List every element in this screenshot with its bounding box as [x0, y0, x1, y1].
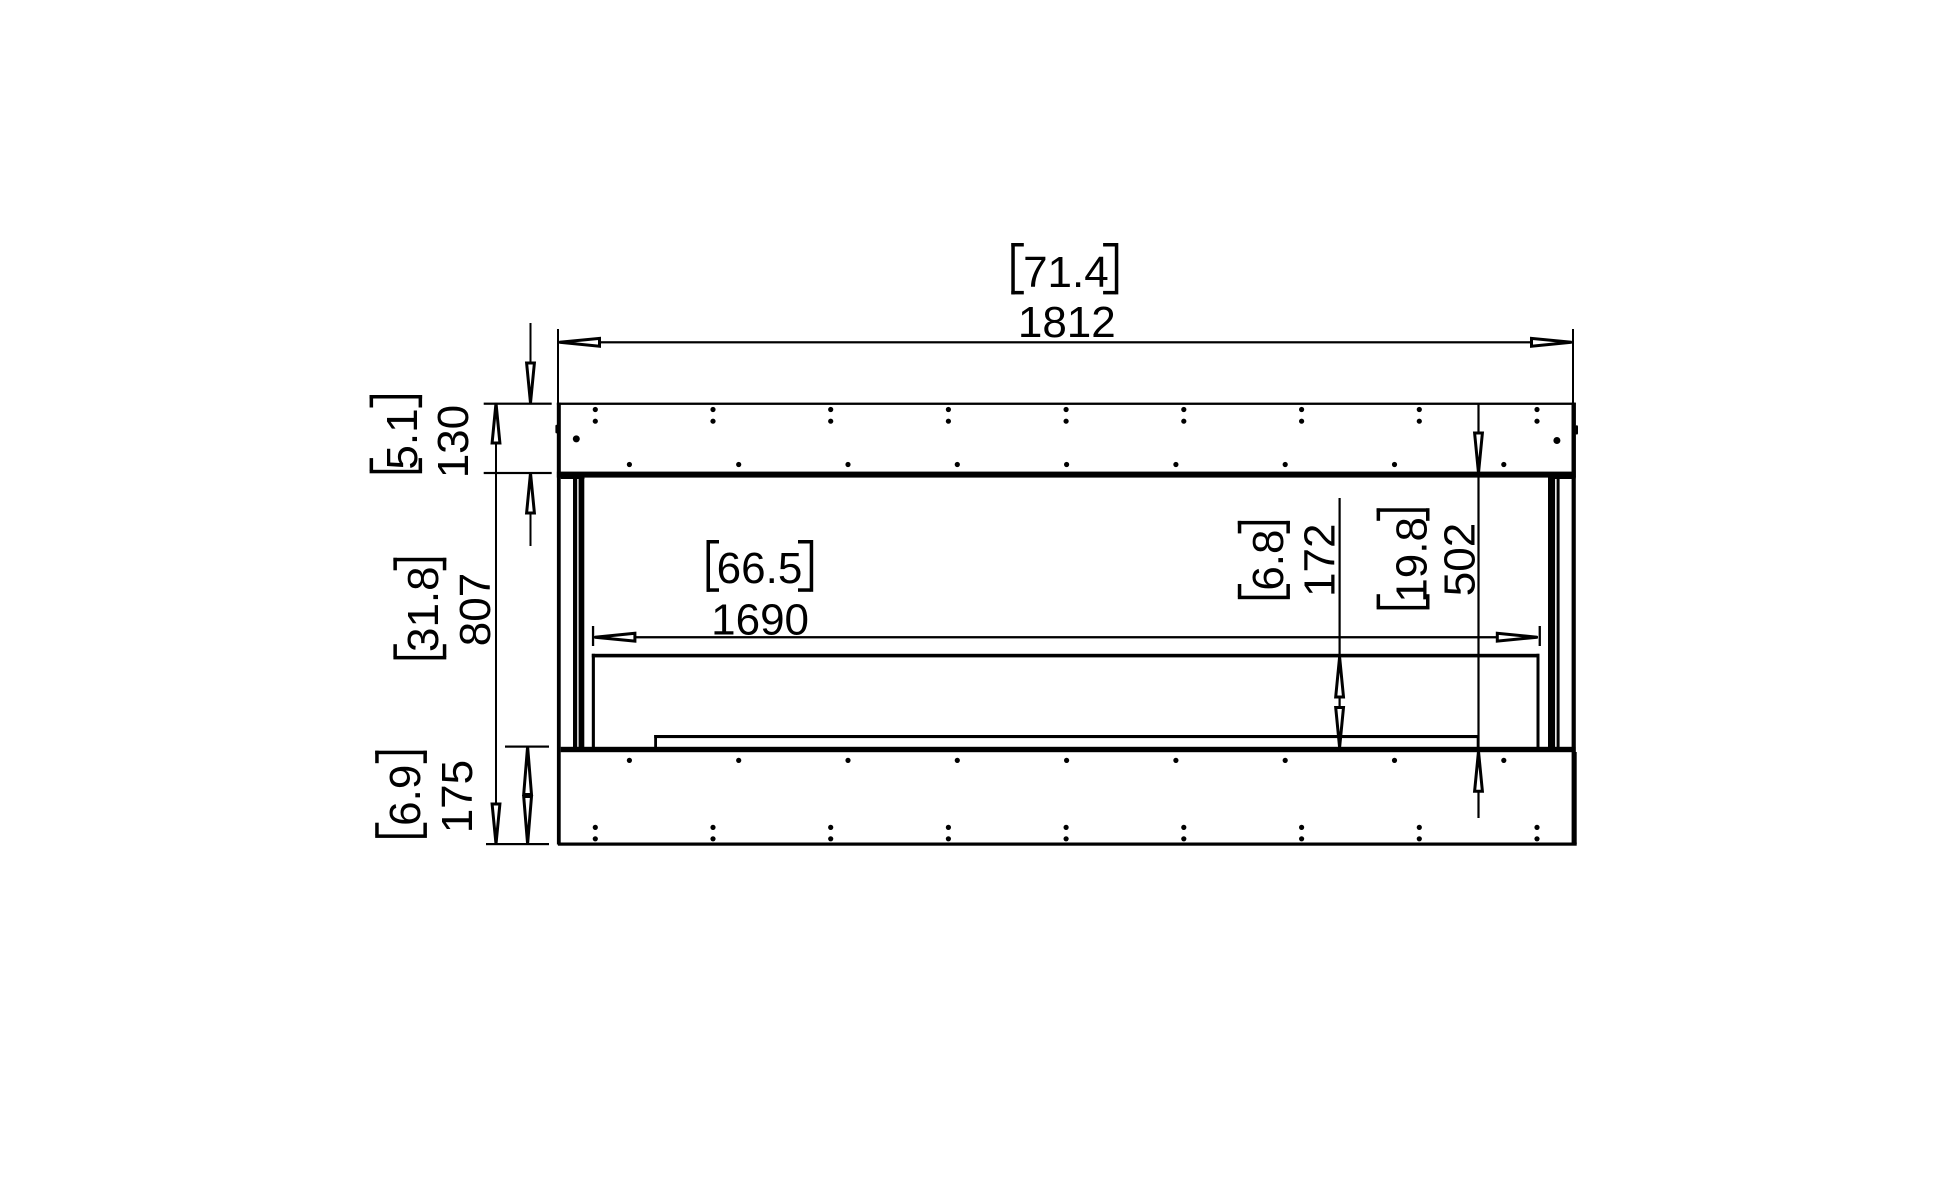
svg-text:807: 807: [451, 573, 500, 646]
svg-text:172: 172: [1296, 524, 1345, 597]
svg-text:6.9: 6.9: [381, 765, 430, 826]
svg-text:502: 502: [1436, 523, 1485, 596]
svg-text:175: 175: [433, 760, 482, 833]
svg-text:130: 130: [429, 405, 478, 478]
svg-text:19.8: 19.8: [1388, 517, 1437, 603]
svg-text:71.4: 71.4: [1023, 248, 1109, 297]
svg-text:1812: 1812: [1018, 298, 1116, 347]
svg-text:31.8: 31.8: [399, 566, 448, 652]
svg-text:66.5: 66.5: [717, 544, 803, 593]
svg-text:6.8: 6.8: [1244, 530, 1293, 591]
